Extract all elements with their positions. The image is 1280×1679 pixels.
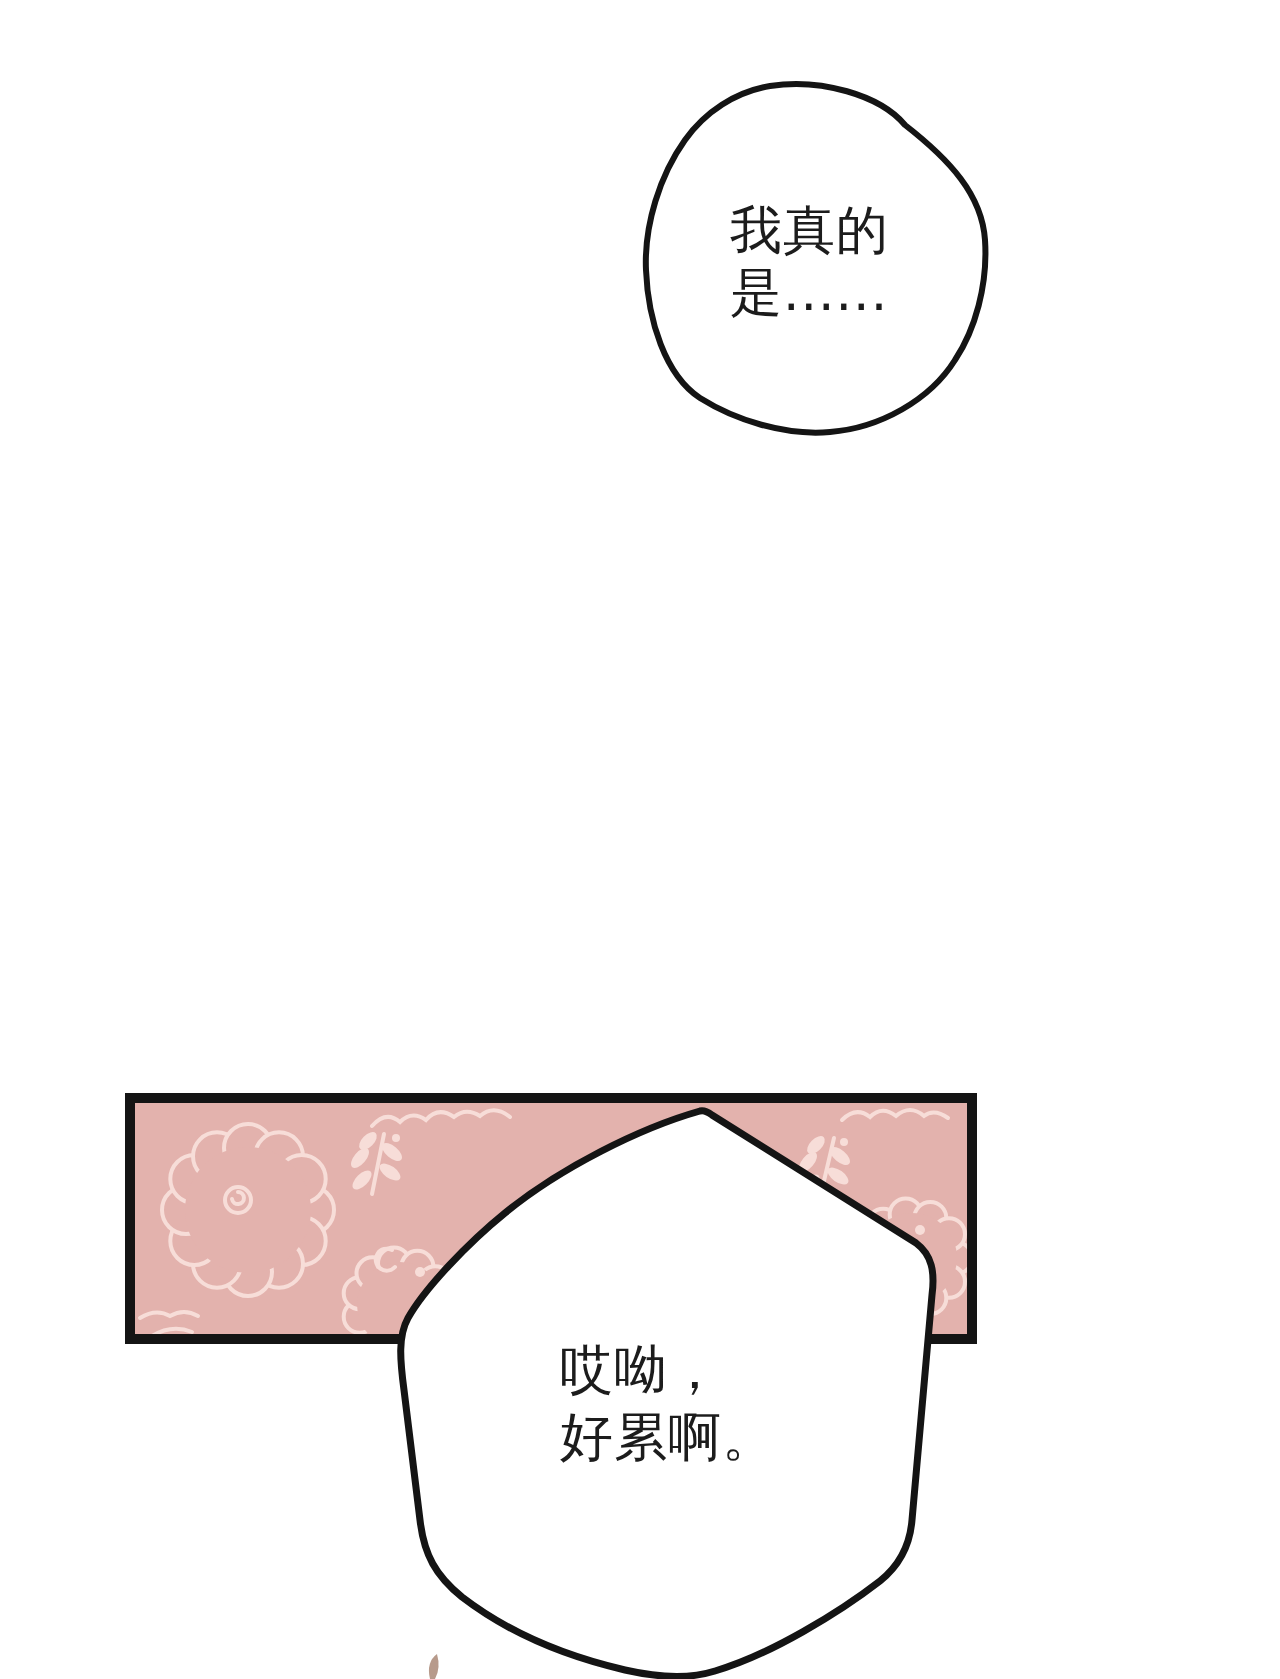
hair-strand <box>429 1654 439 1679</box>
top-bubble-line1: 我真的 <box>730 200 889 260</box>
bottom-bubble-line2: 好累啊。 <box>560 1406 776 1467</box>
comic-page: 我真的 是...... 哎呦， 好累啊。 <box>0 0 1280 1679</box>
sheep-eye-dot <box>415 1267 425 1277</box>
comic-panel-canvas: 我真的 是...... 哎呦， 好累啊。 <box>0 0 1280 1679</box>
sheep-eye-dot <box>915 1225 925 1235</box>
bottom-bubble-line1: 哎呦， <box>560 1339 722 1400</box>
top-bubble-line2: 是...... <box>730 262 888 322</box>
